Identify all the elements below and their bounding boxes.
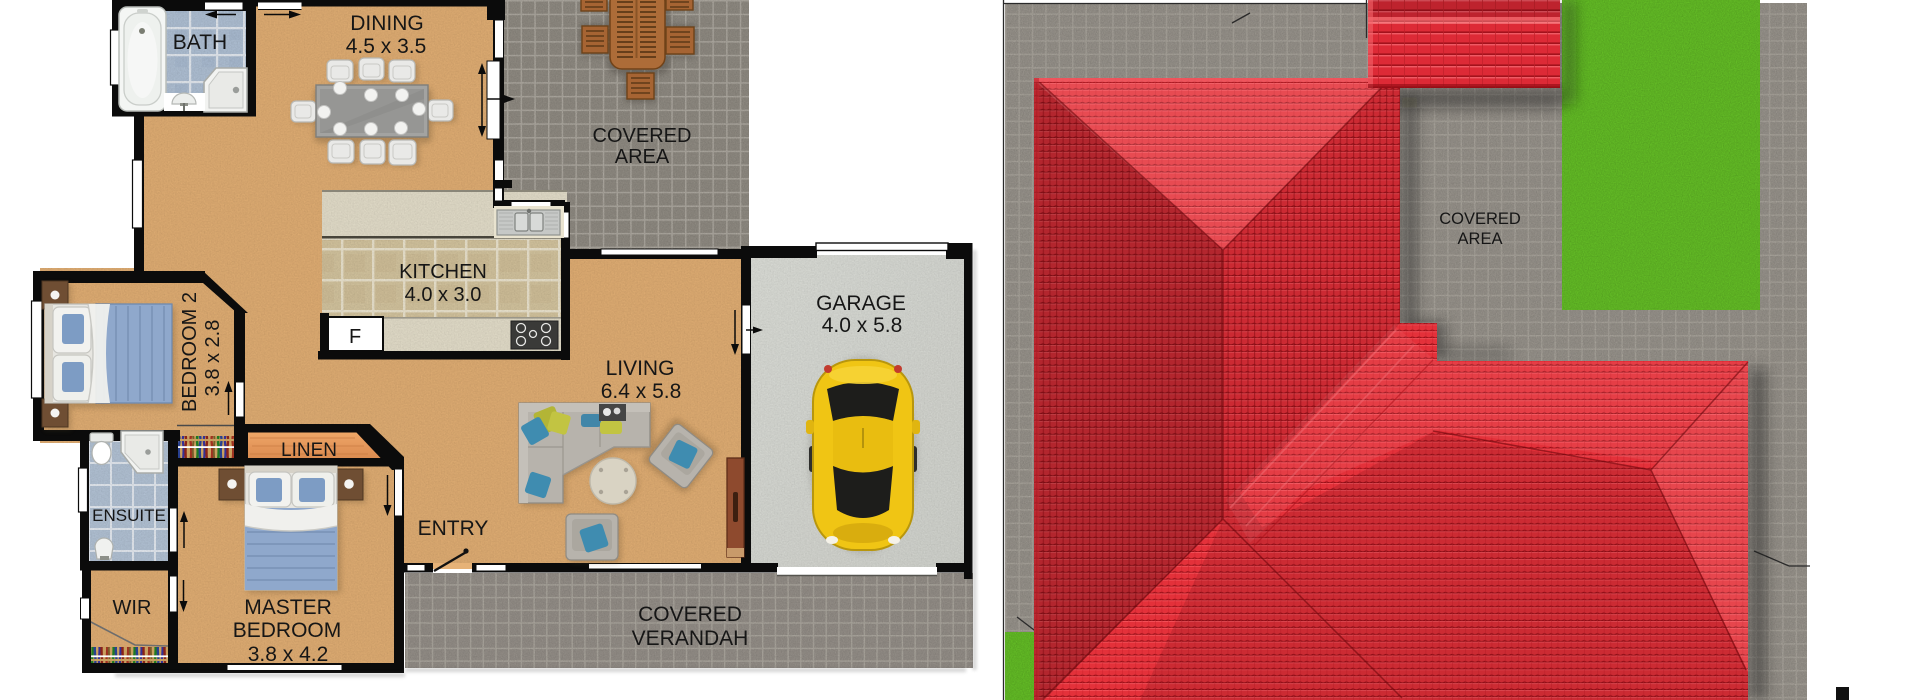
svg-text:AREA: AREA (615, 146, 670, 168)
svg-text:WIR: WIR (113, 597, 152, 619)
svg-text:COVERED: COVERED (638, 603, 742, 626)
svg-text:DINING: DINING (350, 12, 424, 35)
svg-text:COVERED: COVERED (1439, 210, 1521, 228)
svg-text:F: F (349, 326, 361, 348)
svg-text:LIVING: LIVING (606, 357, 675, 380)
svg-text:GARAGE: GARAGE (816, 292, 906, 315)
svg-text:LINEN: LINEN (281, 440, 337, 461)
svg-text:VERANDAH: VERANDAH (632, 627, 749, 650)
svg-text:BEDROOM: BEDROOM (233, 619, 342, 642)
svg-text:4.0 x 3.0: 4.0 x 3.0 (405, 284, 482, 306)
svg-text:ENTRY: ENTRY (418, 517, 489, 540)
svg-text:MASTER: MASTER (244, 596, 332, 619)
svg-text:KITCHEN: KITCHEN (399, 261, 487, 283)
svg-text:6.4 x 5.8: 6.4 x 5.8 (601, 380, 682, 403)
svg-text:BATH: BATH (173, 31, 227, 54)
svg-text:3.8 x 4.2: 3.8 x 4.2 (248, 643, 329, 666)
svg-text:AREA: AREA (1458, 230, 1503, 248)
svg-text:4.0 x 5.8: 4.0 x 5.8 (822, 314, 903, 337)
svg-text:ENSUITE: ENSUITE (92, 506, 166, 525)
svg-text:4.5 x 3.5: 4.5 x 3.5 (346, 35, 427, 58)
svg-text:BEDROOM 2: BEDROOM 2 (179, 292, 201, 412)
svg-text:3.8 x 2.8: 3.8 x 2.8 (202, 320, 224, 397)
svg-text:COVERED: COVERED (593, 125, 692, 147)
